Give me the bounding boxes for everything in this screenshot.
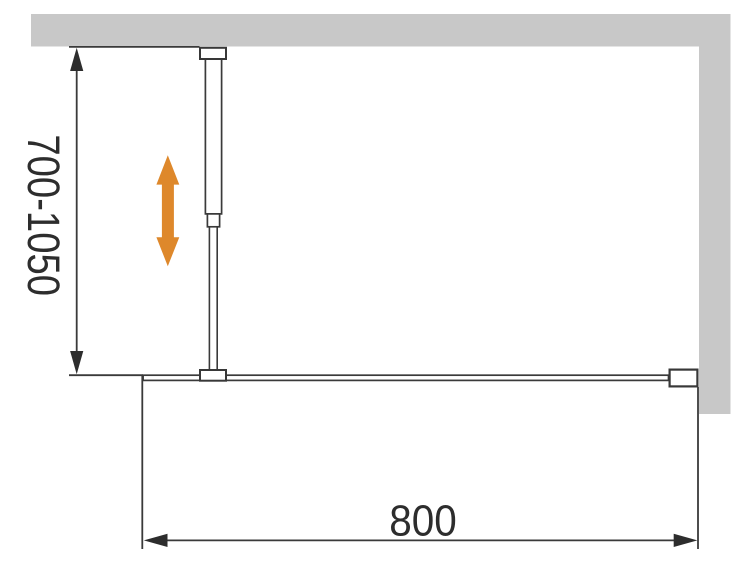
svg-text:700-1050: 700-1050 [18, 134, 69, 296]
svg-text:800: 800 [389, 496, 457, 545]
